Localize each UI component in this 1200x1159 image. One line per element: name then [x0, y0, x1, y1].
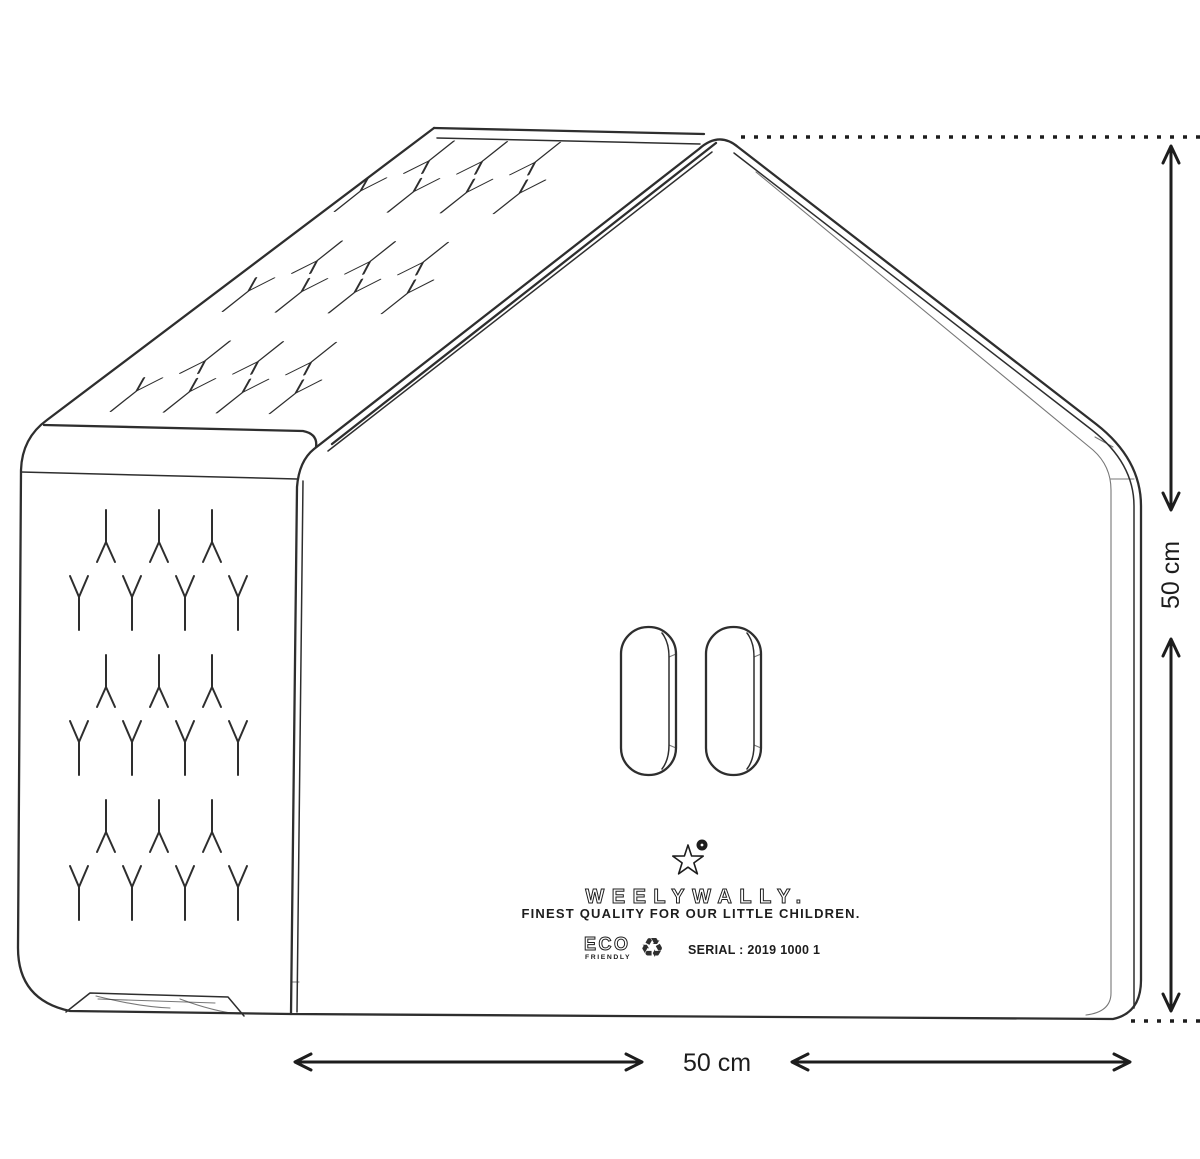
wall-vent-cutout: [176, 866, 194, 920]
eco-label: ECO: [584, 934, 631, 954]
wall-vent-cutout: [203, 800, 221, 852]
width-dimension: 50 cm: [295, 1049, 1130, 1077]
roof-vent-band: [326, 141, 592, 214]
wall-vent-cutout: [229, 576, 247, 630]
roof-front-crease-inner: [328, 152, 712, 451]
roof-vent-cutout: [233, 342, 292, 374]
roof-front-crease: [332, 143, 716, 444]
wall-vent-cutout: [229, 721, 247, 775]
wall-vent-cutout: [176, 576, 194, 630]
roof-vent-cutout: [214, 278, 274, 312]
front-fold-inner-line: [297, 481, 303, 1012]
registered-mark-dot: [701, 844, 704, 847]
width-dimension-label: 50 cm: [683, 1049, 751, 1077]
roof-vent-cutout: [208, 379, 268, 413]
right-gable-inner-line: [734, 153, 1134, 1008]
wall-vent-cutout: [203, 510, 221, 562]
roof-vent-cutout: [457, 142, 516, 174]
roof-vent-cutout: [379, 178, 439, 212]
roof-vent-cutout: [267, 278, 327, 312]
wall-vent-cutout: [70, 721, 88, 775]
roof-vent-cutout: [292, 241, 351, 273]
roof-vent-cutout: [286, 342, 345, 374]
base-notch-inner-line-3: [96, 996, 170, 1008]
wall-vent-cutout: [150, 510, 168, 562]
roof-vent-cutout: [261, 380, 321, 414]
wall-vent-pattern: [70, 510, 247, 920]
wall-vent-cutout: [150, 800, 168, 852]
roof-vent-band: [214, 241, 480, 314]
handle-slots: [621, 627, 761, 775]
roof-vent-cutout: [180, 341, 239, 373]
roof-vent-cutout: [432, 179, 492, 213]
drawing-canvas: WEELYWALLY. FINEST QUALITY FOR OUR LITTL…: [0, 0, 1200, 1159]
serial-number-label: SERIAL : 2019 1000 1: [688, 943, 820, 957]
handle-slot-right: [706, 627, 761, 775]
eave-lower-line: [21, 472, 297, 479]
wall-vent-cutout: [203, 655, 221, 707]
wall-vent-cutout: [229, 866, 247, 920]
wall-vent-cutout: [70, 576, 88, 630]
wall-vent-cutout: [150, 655, 168, 707]
roof-vent-cutout: [510, 142, 569, 174]
handle-slot-left: [621, 627, 676, 775]
product-dimension-drawing: WEELYWALLY. FINEST QUALITY FOR OUR LITTL…: [0, 0, 1200, 1159]
wall-vent-cutout: [123, 866, 141, 920]
roof-vent-band: [102, 341, 368, 414]
brand-tagline: FINEST QUALITY FOR OUR LITTLE CHILDREN.: [521, 906, 860, 921]
wall-vent-cutout: [123, 576, 141, 630]
wall-vent-cutout: [176, 721, 194, 775]
brand-block: WEELYWALLY. FINEST QUALITY FOR OUR LITTL…: [521, 840, 860, 965]
height-dimension: 50 cm: [1157, 146, 1185, 1011]
roof-ridge-line: [434, 128, 704, 134]
roof-vent-cutout: [404, 141, 463, 173]
roof-ridge-inner-line: [437, 138, 700, 144]
eco-friendly-label: FRIENDLY: [585, 954, 631, 961]
roof-vent-cutout: [373, 280, 433, 314]
roof-vent-cutout: [398, 242, 457, 274]
wall-vent-cutout: [123, 721, 141, 775]
recycle-icon: ♻: [640, 933, 664, 964]
roof-vent-cutout: [102, 378, 162, 412]
roof-vent-cutout: [345, 242, 404, 274]
roof-vent-cutout: [320, 279, 380, 313]
dimension-annotations: 50 cm 50 cm: [295, 137, 1200, 1077]
roof-vent-cutout: [485, 180, 545, 214]
handle-slot-depth-edge: [662, 633, 669, 769]
wall-vent-cutout: [97, 510, 115, 562]
height-dimension-label: 50 cm: [1157, 541, 1185, 609]
roof-vent-cutout: [326, 178, 386, 212]
eave-upper-line: [44, 425, 316, 447]
wall-vent-cutout: [97, 800, 115, 852]
brand-wordmark: WEELYWALLY.: [585, 886, 808, 908]
wall-vent-cutout: [70, 866, 88, 920]
inner-fold-tick-top: [1095, 437, 1113, 447]
wall-vent-cutout: [97, 655, 115, 707]
roof-vent-cutout: [155, 378, 215, 412]
roof-vent-pattern: [102, 141, 592, 414]
handle-slot-depth-edge: [747, 633, 754, 769]
